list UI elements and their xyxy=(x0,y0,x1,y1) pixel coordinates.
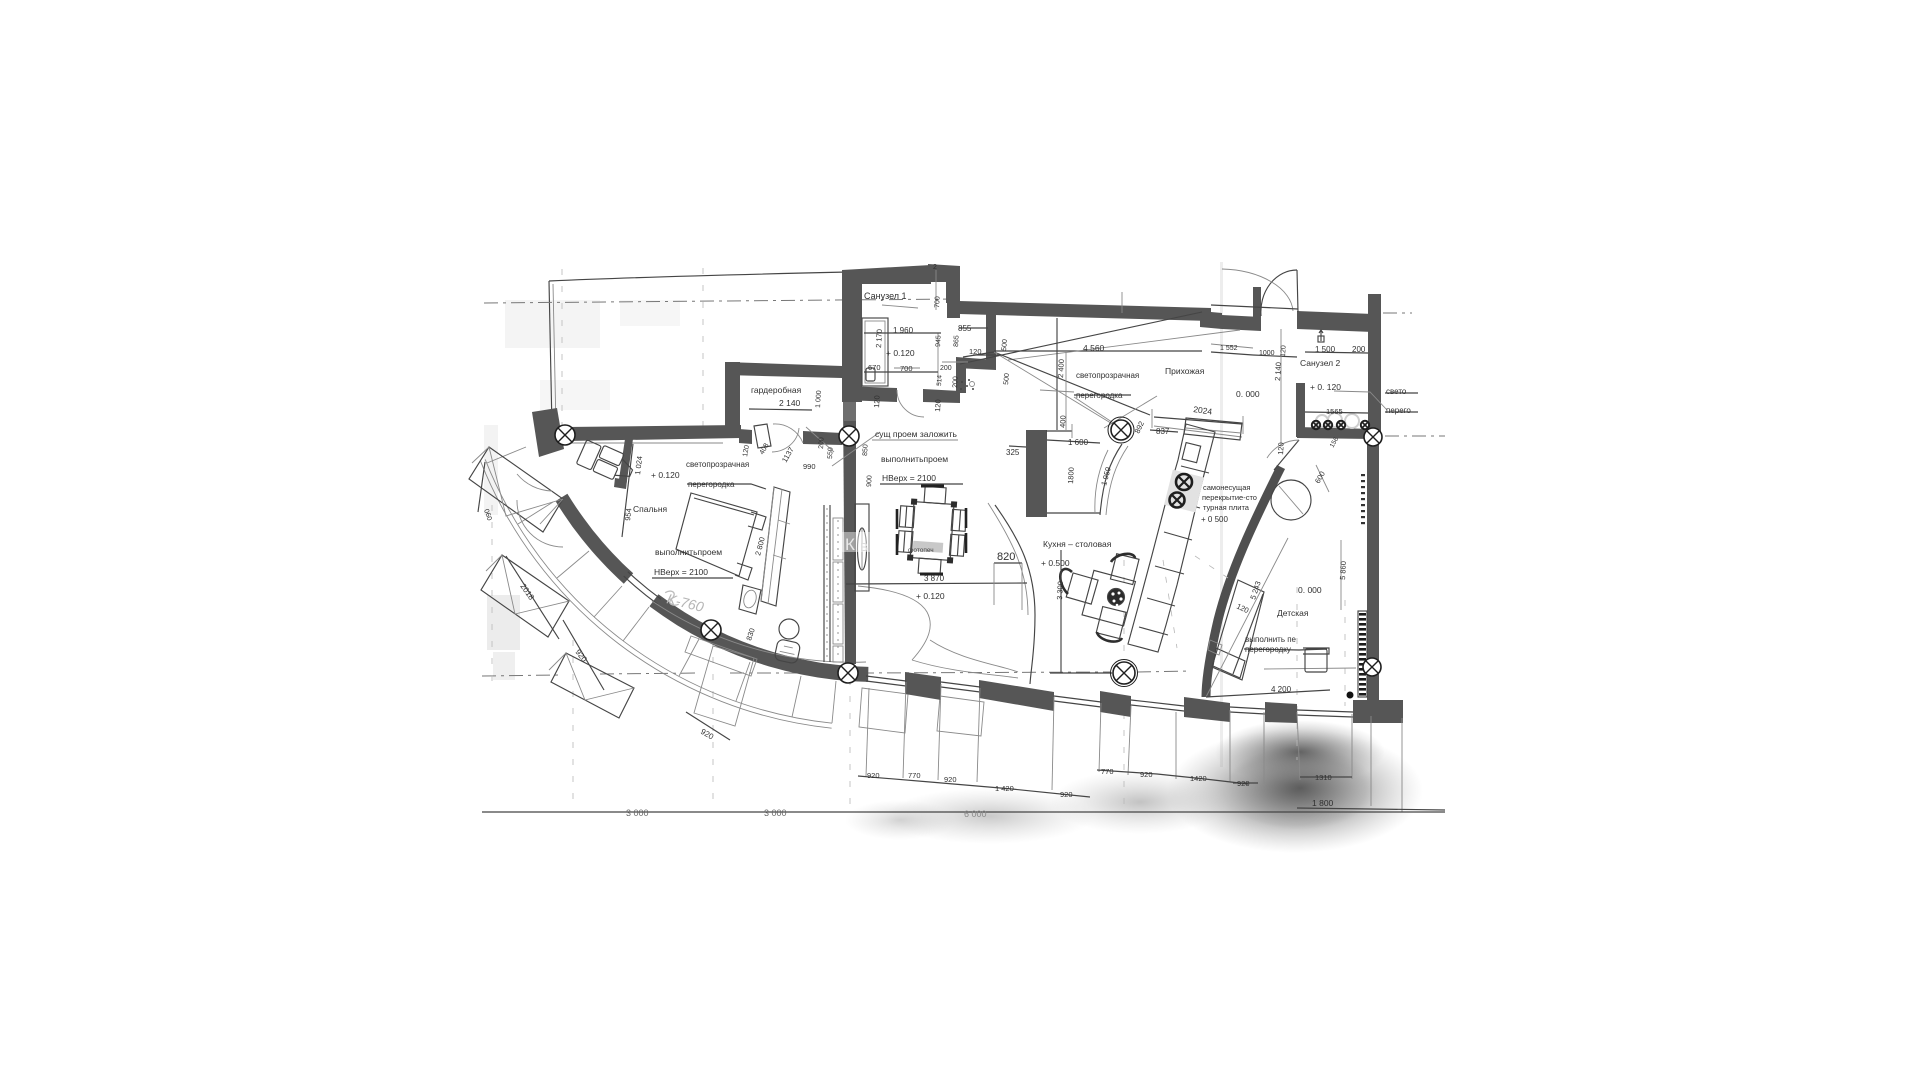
svg-text:1000: 1000 xyxy=(1259,350,1275,357)
svg-text:325: 325 xyxy=(1006,448,1020,457)
svg-text:выполнить пе: выполнить пе xyxy=(1245,635,1297,644)
svg-text:0. 000: 0. 000 xyxy=(1236,389,1260,399)
svg-text:200: 200 xyxy=(818,437,826,449)
svg-text:1 552: 1 552 xyxy=(1220,345,1238,352)
svg-text:2 140: 2 140 xyxy=(1273,362,1283,381)
svg-text:820: 820 xyxy=(997,551,1015,563)
svg-text:перегородка: перегородка xyxy=(688,480,735,489)
svg-text:перегородка: перегородка xyxy=(1076,391,1123,400)
svg-text:700: 700 xyxy=(900,364,913,373)
svg-text:+ 0 500: + 0 500 xyxy=(1201,515,1228,524)
svg-text:500: 500 xyxy=(1001,339,1009,351)
svg-text:Санузел 2: Санузел 2 xyxy=(1300,358,1340,368)
svg-text:120: 120 xyxy=(872,395,882,408)
svg-text:5 860: 5 860 xyxy=(1338,561,1348,580)
svg-text:гардеробная: гардеробная xyxy=(751,385,802,395)
svg-text:1 960: 1 960 xyxy=(893,326,914,335)
svg-text:3 000: 3 000 xyxy=(626,808,649,818)
svg-text:514: 514 xyxy=(936,375,944,387)
svg-text:920: 920 xyxy=(1140,770,1153,779)
svg-text:200: 200 xyxy=(1352,345,1366,354)
svg-text:Детская: Детская xyxy=(1277,608,1309,618)
svg-text:120: 120 xyxy=(1280,345,1288,357)
svg-text:200: 200 xyxy=(940,365,952,372)
svg-text:700: 700 xyxy=(934,296,942,308)
svg-text:турная плита: турная плита xyxy=(1203,503,1250,512)
svg-text:сущ проем заложить: сущ проем заложить xyxy=(875,429,957,439)
svg-text:в: в xyxy=(860,538,868,555)
svg-text:Санузел 1: Санузел 1 xyxy=(864,291,907,301)
svg-text:850: 850 xyxy=(862,444,870,456)
svg-text:светопрозрачная: светопрозрачная xyxy=(1076,371,1139,380)
svg-text:Спальня: Спальня xyxy=(633,504,668,514)
svg-text:выполнитьпроем: выполнитьпроем xyxy=(881,454,948,464)
svg-text:НВерх = 2100: НВерх = 2100 xyxy=(654,567,708,577)
svg-text:1 600: 1 600 xyxy=(1068,438,1089,447)
svg-text:+ 0.120: + 0.120 xyxy=(916,591,945,601)
svg-text:550: 550 xyxy=(827,447,835,459)
svg-text:954: 954 xyxy=(623,508,633,522)
svg-text:1420: 1420 xyxy=(1190,774,1207,783)
svg-text:1 000: 1 000 xyxy=(815,390,823,408)
svg-text:900: 900 xyxy=(866,475,874,487)
svg-text:0. 000: 0. 000 xyxy=(1298,585,1322,595)
svg-text:+ 0.500: + 0.500 xyxy=(1041,558,1070,568)
svg-text:920: 920 xyxy=(867,771,880,780)
svg-text:120: 120 xyxy=(1276,442,1286,455)
svg-text:перего: перего xyxy=(1386,406,1411,415)
svg-text:фотопеч: фотопеч xyxy=(908,547,934,554)
svg-text:1565: 1565 xyxy=(1326,407,1343,416)
svg-text:+ 0.120: + 0.120 xyxy=(651,470,680,480)
svg-text:Кухня – столовая: Кухня – столовая xyxy=(1043,539,1112,549)
svg-text:920: 920 xyxy=(944,775,957,784)
svg-text:855: 855 xyxy=(958,324,972,333)
svg-text:1 800: 1 800 xyxy=(1312,798,1334,808)
svg-text:4 560: 4 560 xyxy=(1083,343,1105,353)
svg-text:920: 920 xyxy=(1060,790,1073,799)
svg-text:свето: свето xyxy=(1386,387,1407,396)
svg-text:К: К xyxy=(845,535,855,554)
svg-text:6 000: 6 000 xyxy=(964,809,987,819)
svg-text:выполнитьпроем: выполнитьпроем xyxy=(655,547,722,557)
svg-text:2 140: 2 140 xyxy=(779,398,801,408)
svg-text:3 000: 3 000 xyxy=(764,808,787,818)
svg-text:перекрытие-сто: перекрытие-сто xyxy=(1202,493,1257,502)
svg-text:990: 990 xyxy=(803,462,816,471)
svg-text:865: 865 xyxy=(953,335,961,347)
svg-text:120: 120 xyxy=(933,399,943,412)
svg-text:945: 945 xyxy=(935,335,943,347)
svg-text:Прихожая: Прихожая xyxy=(1165,366,1205,376)
svg-text:837: 837 xyxy=(1156,427,1170,436)
svg-text:самонесущая: самонесущая xyxy=(1203,483,1250,492)
svg-text:перегородку: перегородку xyxy=(1245,645,1291,654)
svg-text:2 400: 2 400 xyxy=(1056,359,1066,378)
svg-text:400: 400 xyxy=(1058,415,1068,428)
svg-text:120: 120 xyxy=(969,347,982,356)
svg-text:770: 770 xyxy=(908,771,921,780)
svg-text:+ 0.120: + 0.120 xyxy=(886,348,915,358)
svg-text:920: 920 xyxy=(1237,779,1250,788)
svg-text:2: 2 xyxy=(933,264,937,271)
svg-text:670: 670 xyxy=(868,363,881,372)
svg-text:1 420: 1 420 xyxy=(995,784,1014,793)
svg-text:3 870: 3 870 xyxy=(924,574,945,583)
svg-text:1800: 1800 xyxy=(1066,467,1076,484)
svg-text:200: 200 xyxy=(952,376,960,388)
svg-text:770: 770 xyxy=(1101,767,1114,776)
svg-text:1 500: 1 500 xyxy=(1315,345,1336,354)
svg-text:4 200: 4 200 xyxy=(1271,685,1292,694)
svg-text:2 170: 2 170 xyxy=(874,329,884,348)
svg-text:светопрозрачная: светопрозрачная xyxy=(686,460,749,469)
svg-text:500: 500 xyxy=(1003,373,1011,385)
svg-text:+ 0. 120: + 0. 120 xyxy=(1310,382,1341,392)
svg-text:НВерх = 2100: НВерх = 2100 xyxy=(882,473,936,483)
svg-text:3 300: 3 300 xyxy=(1055,581,1065,600)
svg-text:1310: 1310 xyxy=(1315,773,1332,782)
